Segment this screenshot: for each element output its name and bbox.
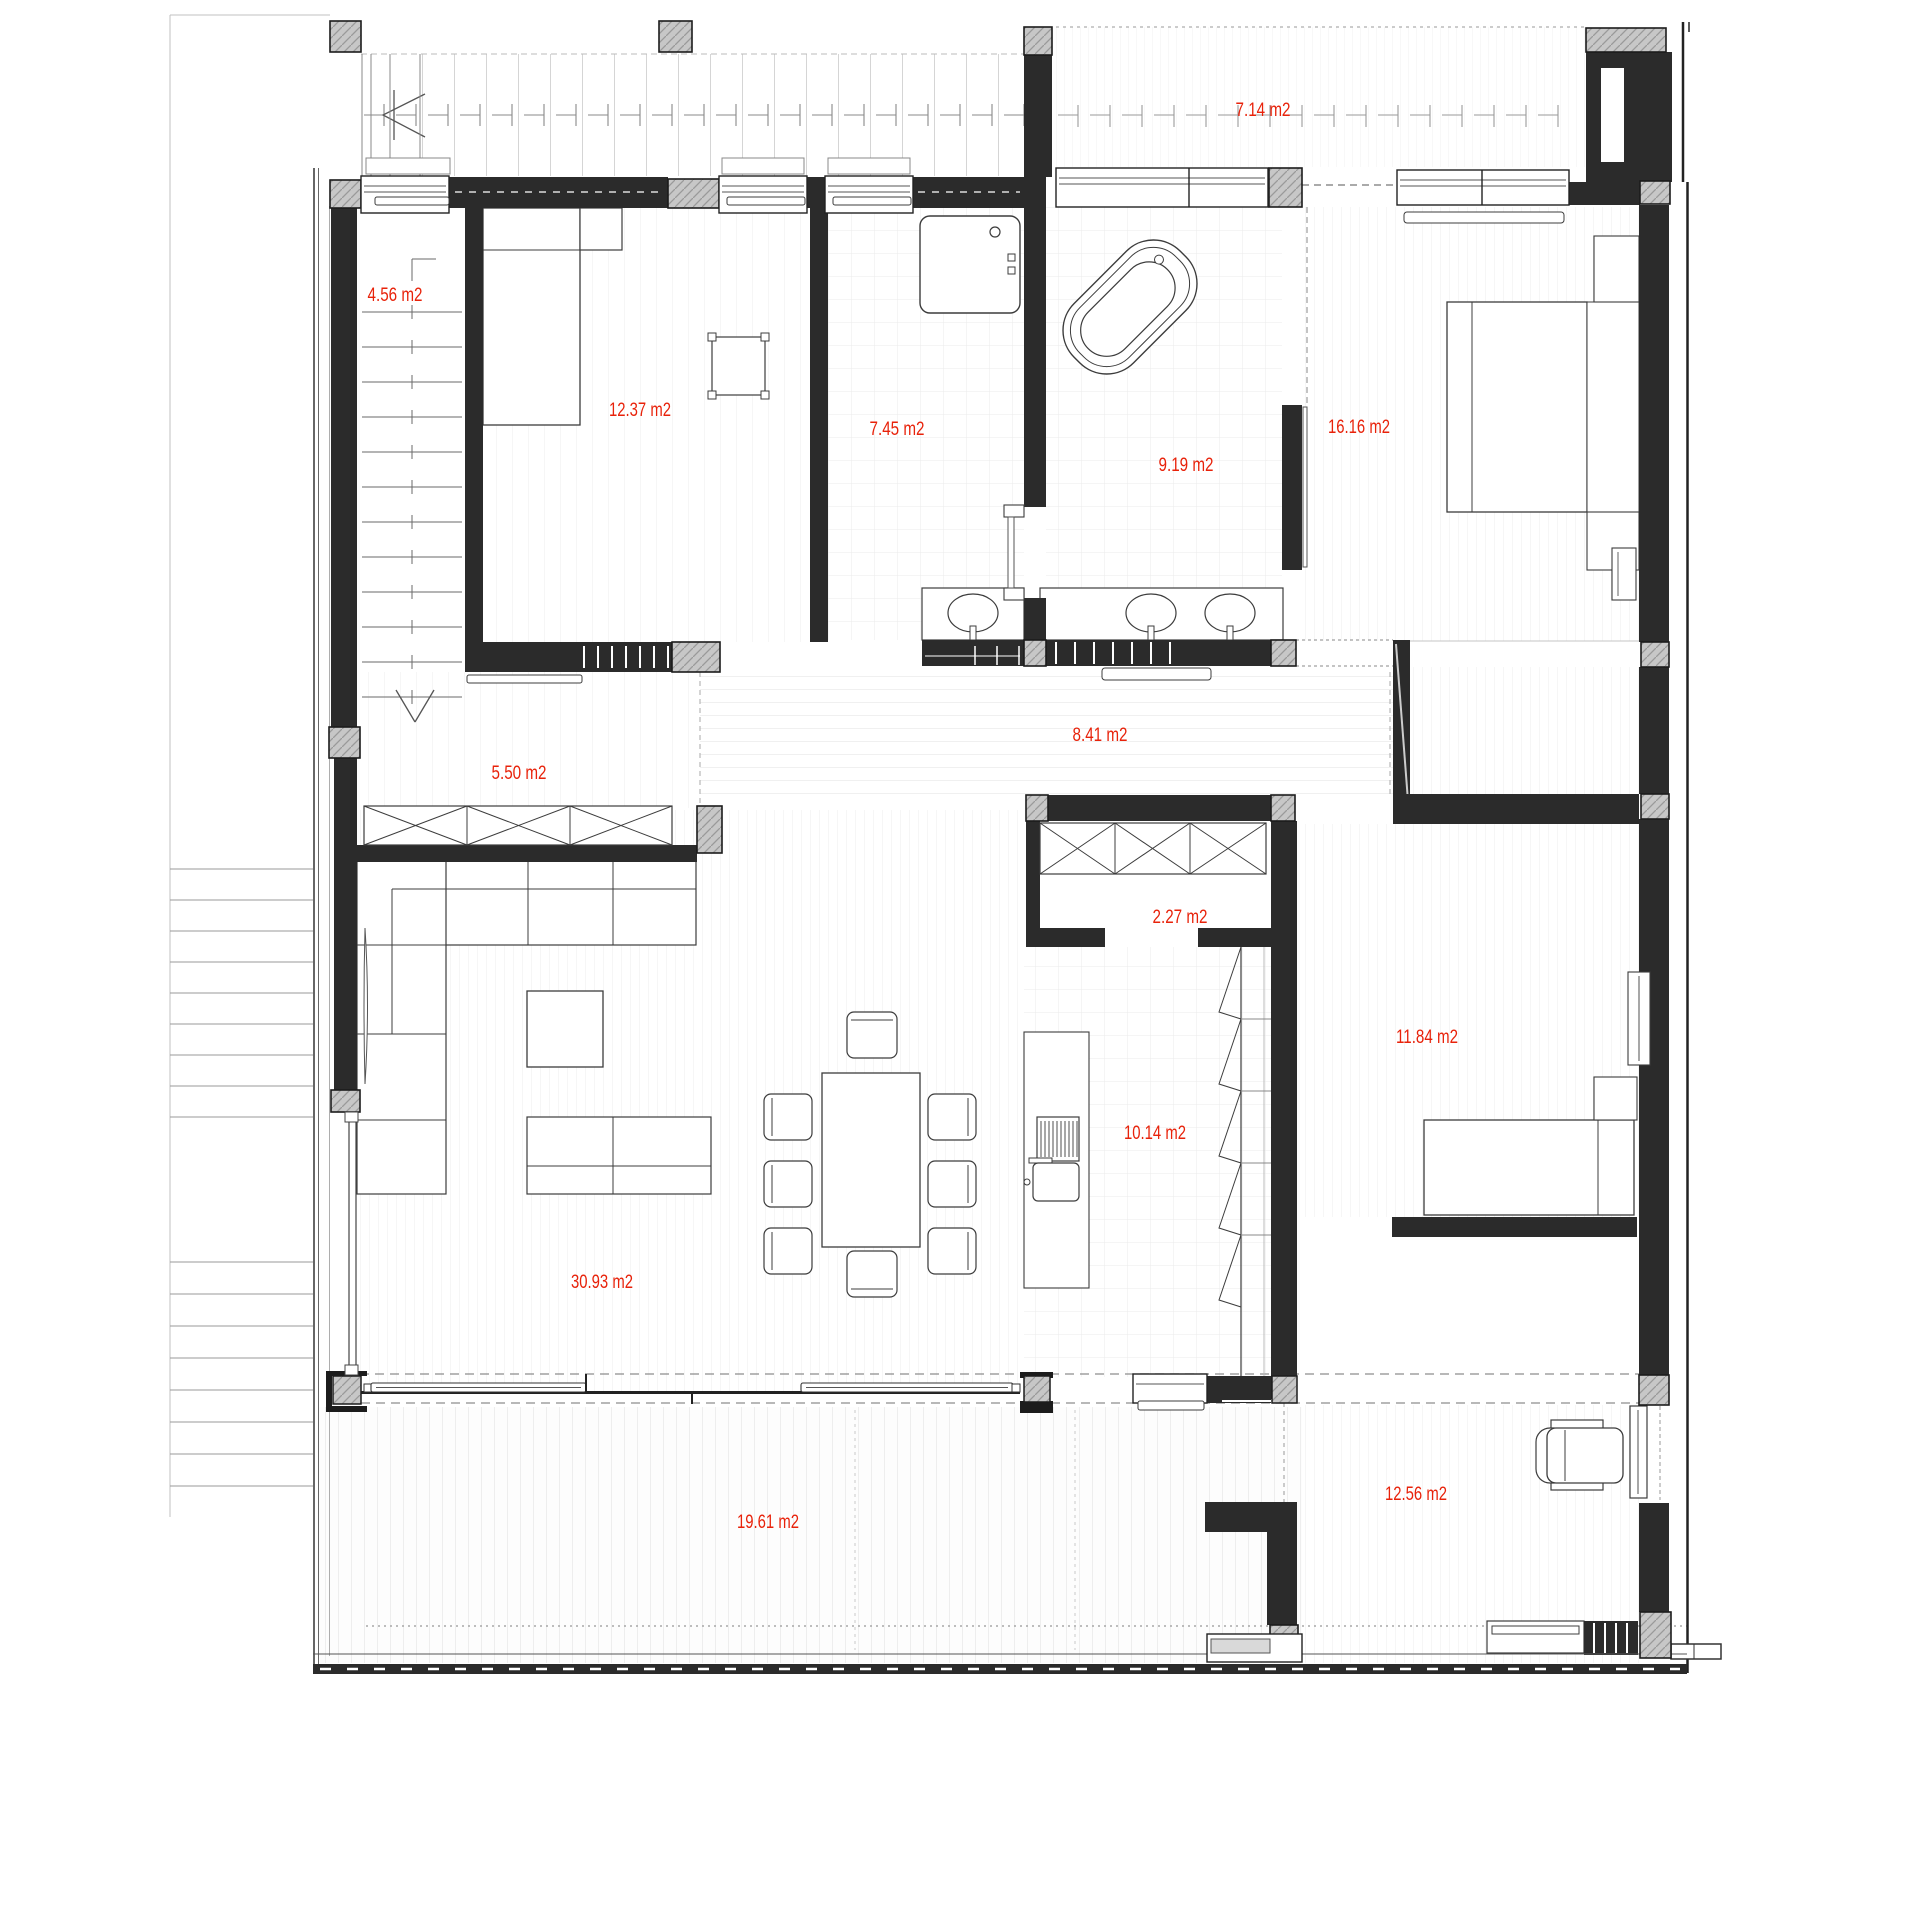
svg-text:5.50 m2: 5.50 m2 — [492, 763, 547, 784]
svg-text:10.14 m2: 10.14 m2 — [1124, 1123, 1186, 1144]
svg-text:12.37 m2: 12.37 m2 — [609, 400, 671, 421]
svg-text:9.19 m2: 9.19 m2 — [1159, 455, 1214, 476]
svg-text:7.14 m2: 7.14 m2 — [1236, 100, 1291, 121]
svg-text:2.27 m2: 2.27 m2 — [1153, 907, 1208, 928]
svg-text:12.56 m2: 12.56 m2 — [1385, 1484, 1447, 1505]
svg-text:4.56 m2: 4.56 m2 — [368, 285, 423, 306]
svg-text:11.84 m2: 11.84 m2 — [1396, 1027, 1458, 1048]
svg-text:30.93 m2: 30.93 m2 — [571, 1272, 633, 1293]
svg-text:7.45 m2: 7.45 m2 — [870, 419, 925, 440]
svg-text:19.61 m2: 19.61 m2 — [737, 1512, 799, 1533]
svg-text:16.16 m2: 16.16 m2 — [1328, 417, 1390, 438]
svg-text:8.41 m2: 8.41 m2 — [1073, 725, 1128, 746]
